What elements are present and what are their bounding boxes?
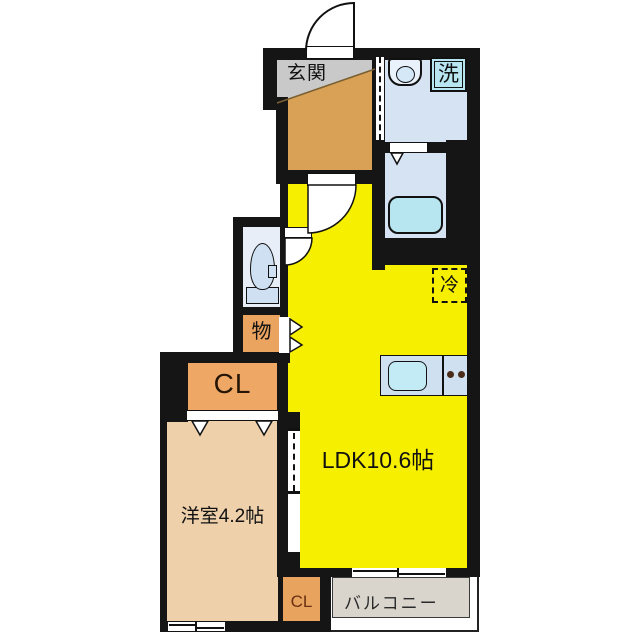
bathroom-door — [389, 142, 428, 153]
washer-box: 洗 — [430, 57, 467, 92]
sink-bowl-icon — [396, 66, 415, 83]
wall-closet-lower-right — [320, 577, 331, 632]
storage-door-strip — [279, 317, 290, 353]
wall-room-divider — [277, 412, 288, 577]
window-pane-line — [169, 624, 197, 626]
window-center-tick — [195, 622, 197, 631]
closet-lower-label: CL — [283, 593, 320, 610]
washer-label: 洗 — [438, 64, 459, 85]
genkan-label: 玄関 — [287, 64, 327, 83]
fridge-space: 冷 — [432, 268, 467, 303]
sliding-door-cap — [288, 491, 300, 494]
wall-western-left — [160, 415, 167, 632]
wall-closet-right — [277, 352, 288, 412]
bathtub-icon — [388, 196, 443, 234]
western-room-window — [168, 622, 225, 631]
entrance-door-arc — [306, 3, 354, 51]
sliding-door-cap — [288, 428, 300, 431]
kitchen-counter-divider — [442, 356, 444, 395]
washroom-door-dashed — [376, 57, 384, 140]
kitchen-counter — [380, 355, 468, 396]
window-center-tick — [397, 568, 399, 577]
wall-right — [467, 48, 480, 577]
toilet-flush-icon — [268, 265, 277, 278]
closet-upper-door-strip — [187, 410, 278, 421]
entrance-door-leaf — [306, 46, 354, 59]
genkan-ldk-door-leaf — [307, 173, 356, 186]
window-pane-line — [397, 573, 445, 575]
balcony-sliding-window — [352, 568, 446, 577]
sink-icon — [388, 58, 422, 86]
storage-label: 物 — [243, 322, 280, 342]
wall-toilet-left — [233, 217, 243, 363]
window-pane-line — [195, 627, 224, 629]
wall-bath-bottom — [372, 238, 470, 265]
kitchen-sink-icon — [388, 361, 427, 391]
ldk-label: LDK10.6帖 — [288, 449, 468, 472]
toilet-door-leaf — [284, 227, 312, 238]
closet-upper-label: CL — [188, 370, 277, 398]
washroom-door-dash-line — [379, 57, 381, 140]
window-pane-line — [353, 570, 399, 572]
western-room-label: 洋室4.2帖 — [167, 507, 278, 526]
stove-burner-icon — [447, 371, 454, 378]
wall-closet-left-block — [160, 352, 188, 422]
floor-plan: 洗 冷 — [0, 0, 640, 640]
balcony-label: バルコニー — [344, 595, 439, 612]
fridge-label: 冷 — [440, 276, 459, 295]
western-ldk-sliding-door — [288, 428, 300, 552]
stove-burner-icon — [458, 371, 465, 378]
